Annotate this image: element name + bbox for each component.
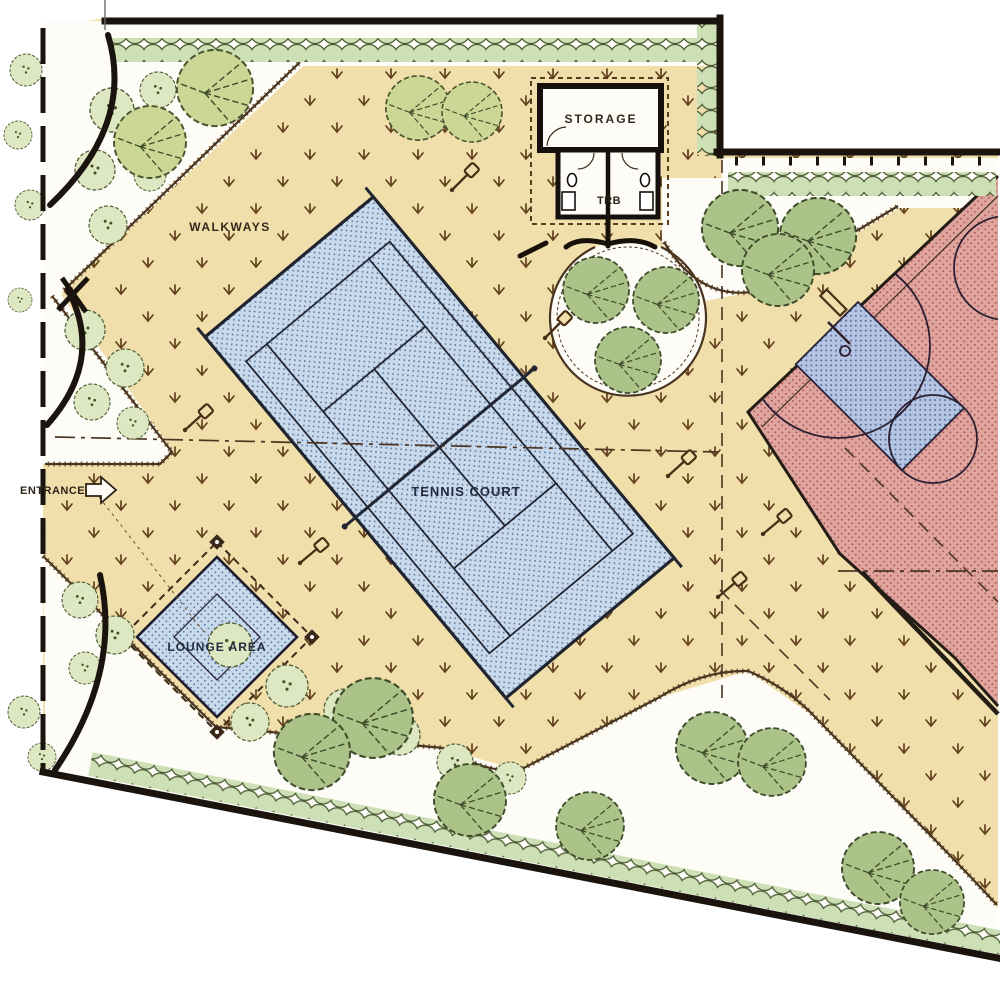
lounge-area-label: LOUNGE AREA: [167, 640, 266, 654]
hedge-top-right: [728, 172, 996, 196]
hedge-jog: [697, 24, 719, 156]
storage-label: STORAGE: [564, 112, 637, 126]
entrance-label: ENTRANCE: [20, 485, 85, 497]
tennis-court-label: TENNIS COURT: [411, 484, 521, 499]
site-plan-drawing: WALKWAYS TENNIS COURT LOUNGE AREA STORAG…: [0, 0, 1000, 1000]
trb-label: TRB: [597, 195, 621, 207]
walkways-label: WALKWAYS: [189, 220, 271, 234]
site-plan-page: WALKWAYS TENNIS COURT LOUNGE AREA STORAG…: [0, 0, 1000, 1000]
